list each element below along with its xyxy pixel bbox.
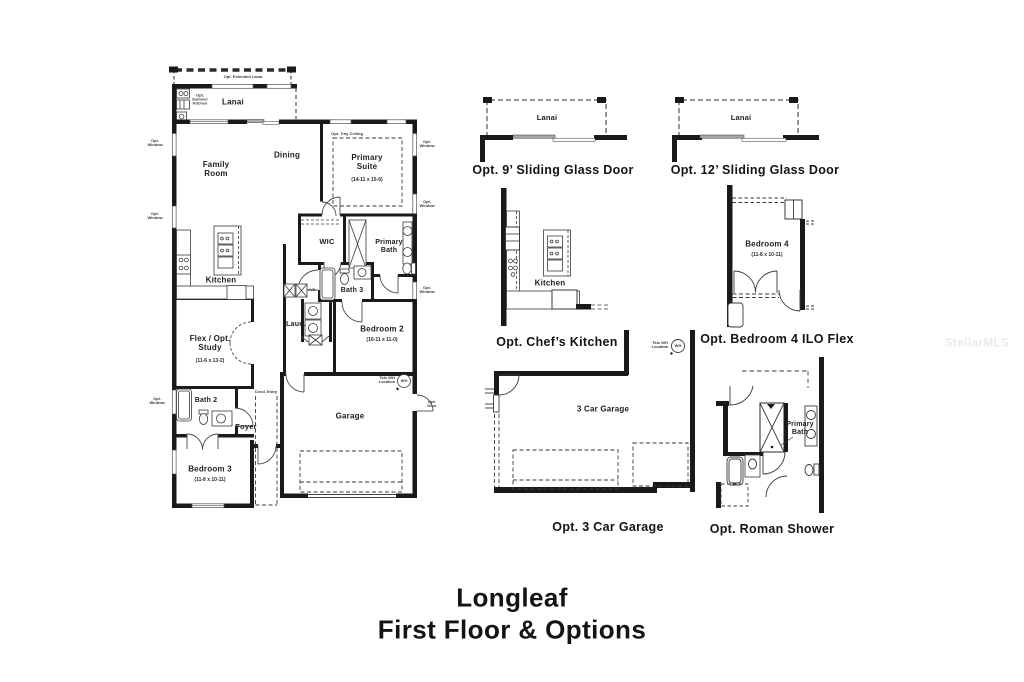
summer-kitchen-label: Opt. Summer Kitchen xyxy=(191,94,210,107)
extended-lanai-label: Opt. Extended Lanai xyxy=(224,75,263,79)
garage3-room-label: 3 Car Garage xyxy=(577,406,629,415)
opt-window-label: Opt. Window xyxy=(148,212,163,220)
primary-suite-dims: (14-11 x 15-6) xyxy=(351,178,382,184)
opt-door-label: Opt. Door xyxy=(426,400,439,408)
garage3-caption: Opt. 3 Car Garage xyxy=(552,520,663,534)
opt12-caption: Opt. 12’ Sliding Glass Door xyxy=(671,163,840,177)
dining-label: Dining xyxy=(274,152,300,161)
bedroom4-room-label: Bedroom 4 xyxy=(745,241,789,250)
ac-label: A/C xyxy=(309,288,316,292)
bath2-label: Bath 2 xyxy=(195,397,218,405)
wh-location-label: Tkls WH Location xyxy=(378,376,397,384)
primary-bath-label: Primary Bath xyxy=(371,239,407,255)
opt-slider-9-diagram xyxy=(480,97,627,162)
chefs-kitchen-caption: Opt. Chef’s Kitchen xyxy=(496,335,617,349)
floor-plan-sheet: Opt. Extended Lanai Lanai Opt. Summer Ki… xyxy=(0,0,1024,682)
lanai-label: Lanai xyxy=(222,99,244,108)
opt12-lanai-label: Lanai xyxy=(731,114,752,122)
bedroom3-dims: (11-8 x 10-11) xyxy=(194,478,225,484)
summer-kitchen-fixtures xyxy=(177,89,190,121)
opt-window-label: Opt. Window xyxy=(420,140,435,148)
roman-shower-room-label: Primary Bath xyxy=(782,421,818,437)
opt9-caption: Opt. 9’ Sliding Glass Door xyxy=(472,163,633,177)
laundry-label: Laun. xyxy=(286,321,306,329)
watermark: StellarMLS xyxy=(945,338,1009,351)
bedroom4-dims: (11-8 x 10-11) xyxy=(751,253,782,259)
kitchen-label: Kitchen xyxy=(206,277,237,286)
opt-window-label: Opt. Window xyxy=(148,139,163,147)
plan-subtitle: First Floor & Options xyxy=(378,615,646,644)
bath3-label: Bath 3 xyxy=(341,287,364,295)
flex-study-dims: (11-6 x 13-2) xyxy=(196,359,225,365)
foyer-label: Foyer xyxy=(235,423,256,431)
plan-title: Longleaf xyxy=(456,583,568,612)
main-floor-plan xyxy=(169,67,433,509)
opt-slider-12-diagram xyxy=(672,97,819,162)
opt-window-label: Opt. Window xyxy=(150,397,165,405)
family-room-label: Family Room xyxy=(195,161,237,179)
opt-window-label: Opt. Window xyxy=(420,200,435,208)
bedroom2-label: Bedroom 2 xyxy=(360,326,404,335)
garage-door xyxy=(308,495,396,498)
opt-chefs-kitchen-diagram xyxy=(501,188,608,326)
opt-window-label: Opt. Window xyxy=(420,286,435,294)
garage3-wh-symbol-label: WH xyxy=(675,344,682,348)
bedroom2-dims: (10-11 x 11-0) xyxy=(366,338,397,344)
wh-symbol-label: WH xyxy=(401,379,408,383)
bedroom3-label: Bedroom 3 xyxy=(188,466,232,475)
garage-label: Garage xyxy=(336,413,365,422)
covd-entry-label: Covd. Entry xyxy=(255,390,277,394)
flex-study-label: Flex / Opt. Study xyxy=(185,335,235,353)
wic-label: WIC xyxy=(319,238,334,246)
chefs-kitchen-room-label: Kitchen xyxy=(535,280,566,289)
dashed-outlines xyxy=(256,138,403,505)
primary-suite-label: Primary Suite xyxy=(344,154,390,172)
tray-ceiling-label: Opt. Tray Ceiling xyxy=(331,132,363,136)
roman-shower-caption: Opt. Roman Shower xyxy=(710,522,835,536)
opt9-lanai-label: Lanai xyxy=(537,114,558,122)
garage3-wh-location-label: Tkls WH Location xyxy=(651,341,670,349)
bedroom4-caption: Opt. Bedroom 4 ILO Flex xyxy=(700,332,853,346)
